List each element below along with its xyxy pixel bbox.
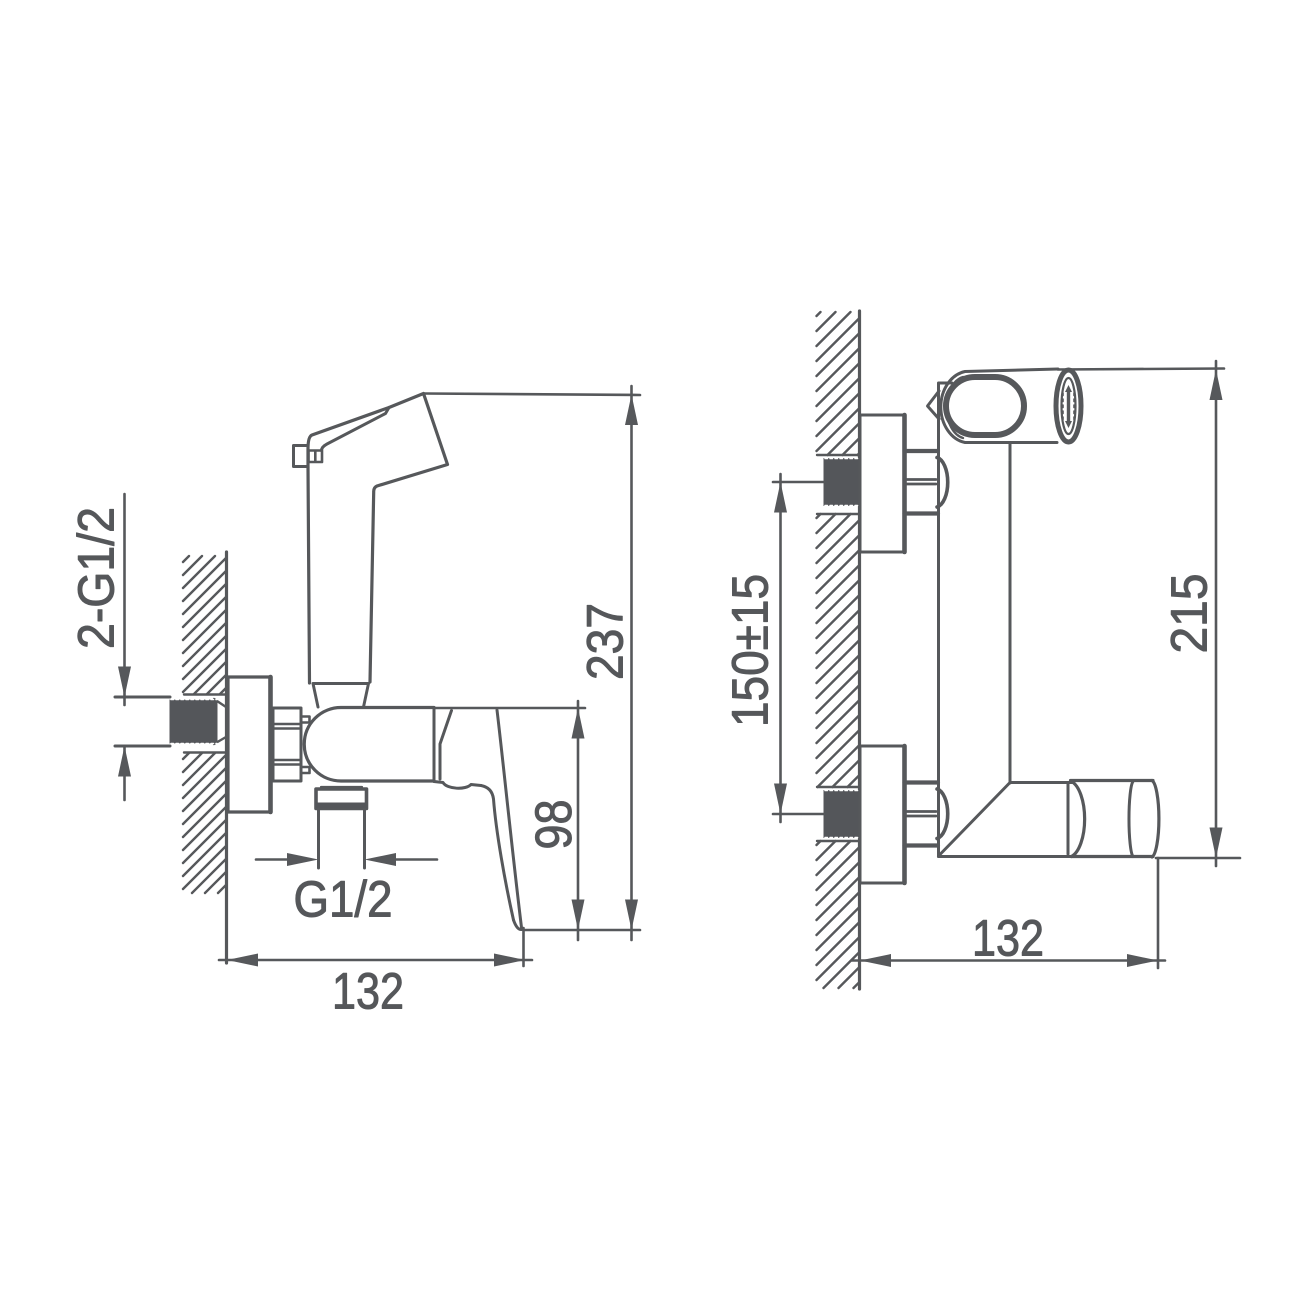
- svg-text:237: 237: [577, 603, 634, 680]
- svg-text:2-G1/2: 2-G1/2: [68, 507, 125, 649]
- svg-text:150±15: 150±15: [722, 574, 779, 727]
- svg-text:98: 98: [525, 800, 582, 850]
- svg-text:G1/2: G1/2: [294, 871, 393, 928]
- svg-text:132: 132: [972, 910, 1044, 967]
- svg-text:132: 132: [332, 963, 404, 1020]
- svg-text:215: 215: [1161, 574, 1218, 654]
